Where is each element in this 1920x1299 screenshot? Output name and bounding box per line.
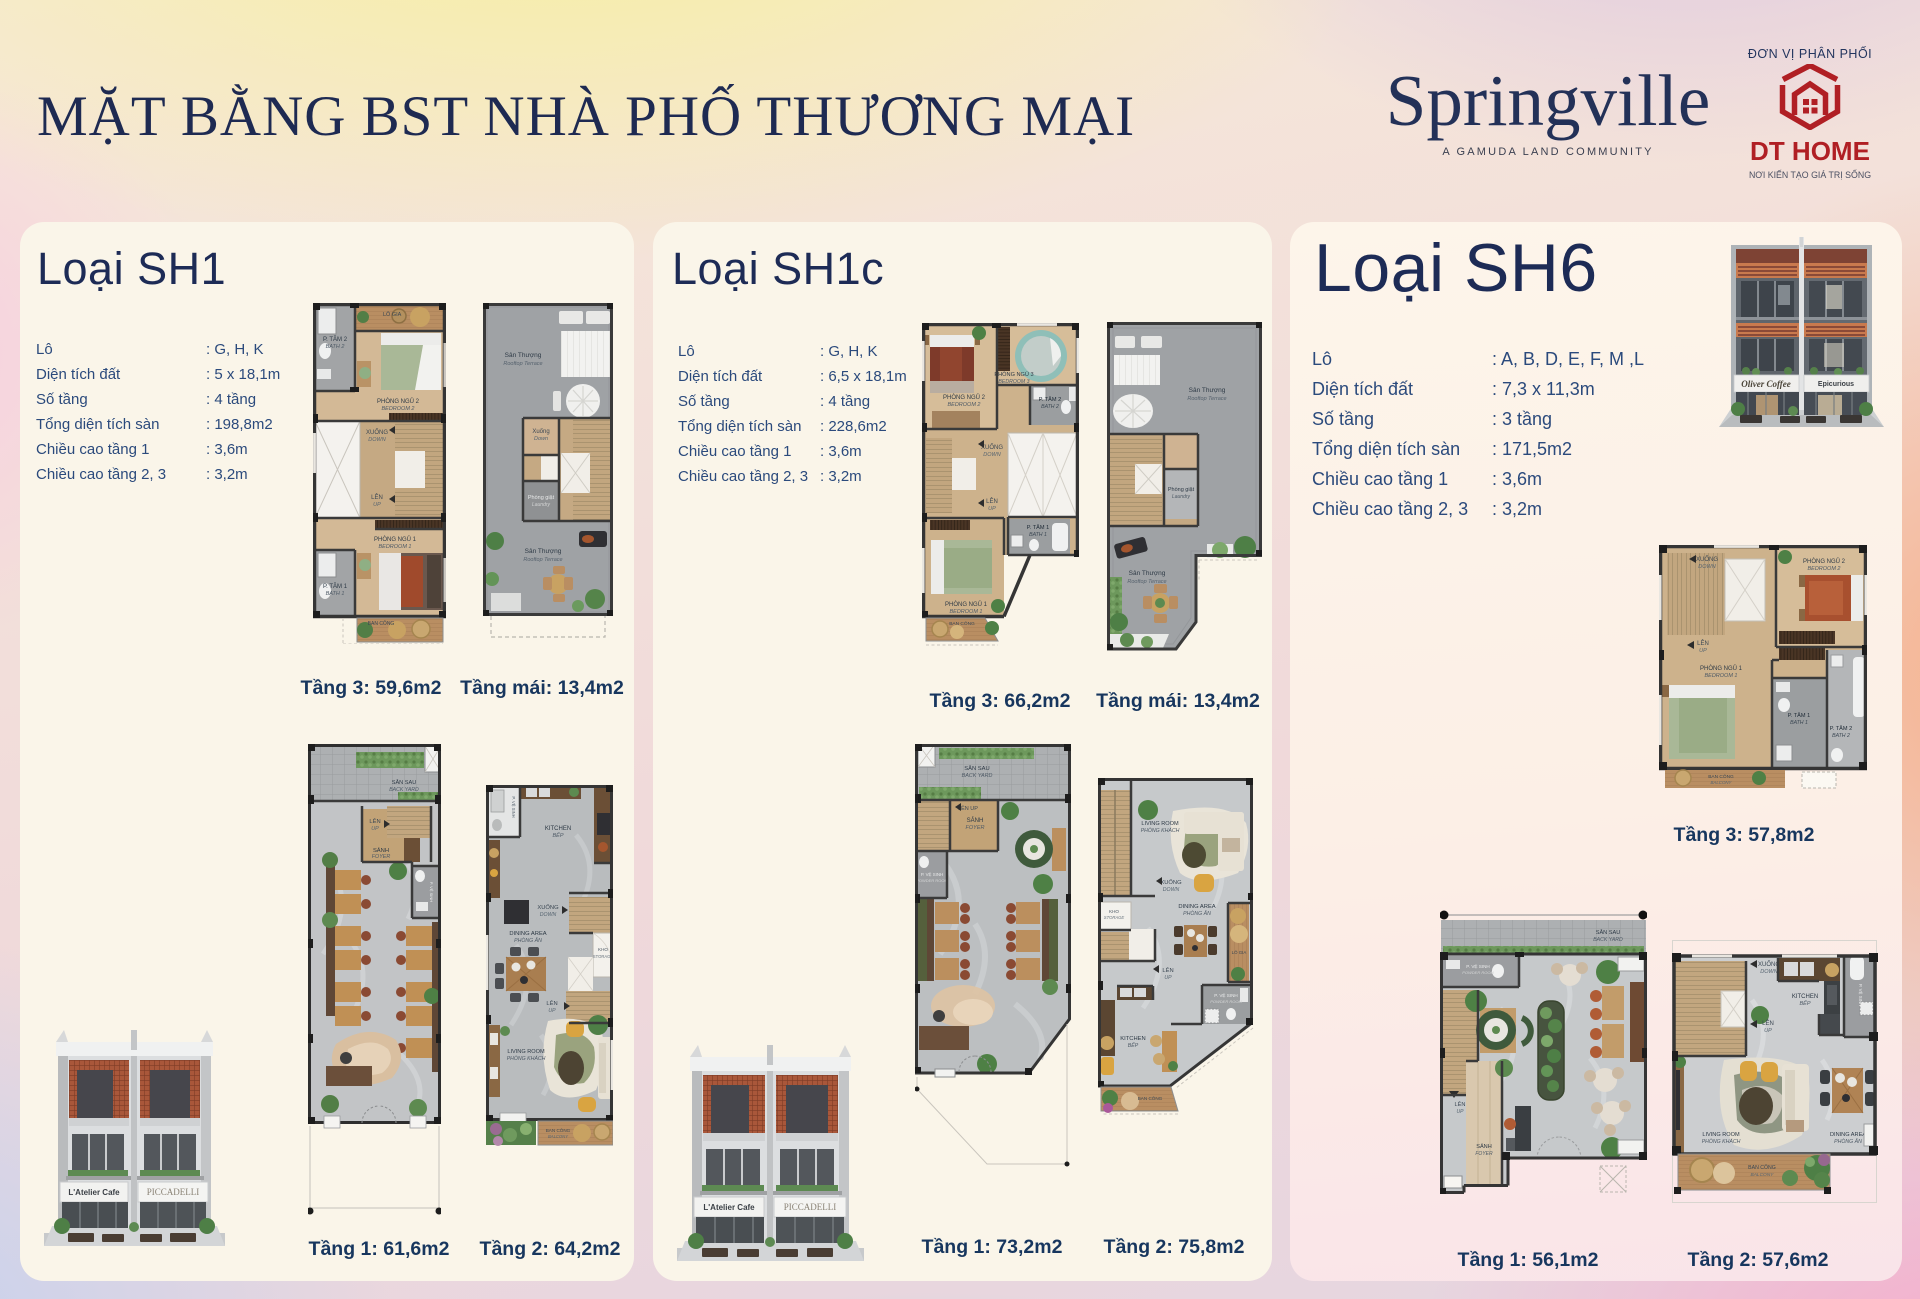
svg-text:P. TÂM 2: P. TÂM 2 — [1830, 725, 1853, 732]
svg-text:XUỐNG: XUỐNG — [1160, 879, 1182, 886]
svg-text:DOWN: DOWN — [540, 912, 557, 918]
svg-text:LÊN UP: LÊN UP — [958, 804, 978, 812]
svg-text:PHÒNG ĂN: PHÒNG ĂN — [514, 937, 542, 944]
svg-text:PHÒNG KHÁCH: PHÒNG KHÁCH — [1702, 1138, 1741, 1145]
svg-text:KHO: KHO — [598, 947, 608, 952]
svg-text:LÊN: LÊN — [1697, 639, 1709, 647]
svg-text:UP: UP — [371, 826, 379, 832]
svg-text:PHÒNG NGỦ 1: PHÒNG NGỦ 1 — [945, 601, 988, 608]
svg-text:BEDROOM 2: BEDROOM 2 — [1807, 566, 1840, 572]
svg-text:PHÒNG KHÁCH: PHÒNG KHÁCH — [1141, 827, 1180, 834]
svg-text:BEDROOM 2: BEDROOM 2 — [947, 402, 980, 408]
svg-text:Epicurious: Epicurious — [1818, 381, 1854, 388]
svg-text:Sân Thượng: Sân Thượng — [1129, 570, 1166, 577]
svg-text:DOWN: DOWN — [1698, 564, 1715, 570]
svg-text:BAN CÔNG: BAN CÔNG — [546, 1127, 571, 1133]
svg-text:SÂN SAU: SÂN SAU — [964, 765, 989, 772]
svg-text:FOYER: FOYER — [966, 825, 985, 831]
svg-text:L'Atelier Cafe: L'Atelier Cafe — [703, 1203, 755, 1212]
svg-text:Laundry: Laundry — [532, 502, 551, 508]
svg-text:SẢNH: SẢNH — [967, 817, 984, 824]
svg-text:POWDER ROOM: POWDER ROOM — [1462, 970, 1494, 975]
svg-text:LÊN: LÊN — [1762, 1019, 1774, 1027]
svg-text:UP: UP — [1699, 648, 1707, 654]
svg-text:PHÒNG ĂN: PHÒNG ĂN — [1183, 910, 1211, 917]
svg-text:PHÒNG NGỦ 1: PHÒNG NGỦ 1 — [1700, 665, 1743, 672]
svg-text:P. TÂM 1: P. TÂM 1 — [1788, 712, 1811, 719]
svg-text:PICCADELLI: PICCADELLI — [784, 1202, 837, 1212]
svg-text:LÔ GIA: LÔ GIA — [1232, 950, 1247, 955]
svg-text:Sân Thượng: Sân Thượng — [505, 352, 542, 359]
svg-text:Oliver Coffee: Oliver Coffee — [1741, 379, 1791, 389]
svg-text:BALCONY: BALCONY — [548, 1134, 569, 1139]
svg-text:DINING AREA: DINING AREA — [1178, 904, 1215, 910]
svg-text:FOYER: FOYER — [1475, 1151, 1493, 1157]
svg-text:STORAGE: STORAGE — [1104, 915, 1125, 920]
svg-text:LÊN: LÊN — [1162, 966, 1173, 974]
svg-text:P. TÂM 1: P. TÂM 1 — [323, 583, 348, 590]
svg-text:DOWN: DOWN — [1760, 969, 1777, 975]
svg-text:SÂN SAU: SÂN SAU — [392, 779, 417, 786]
svg-text:LÊN: LÊN — [986, 497, 998, 505]
svg-text:BATH 2: BATH 2 — [1832, 733, 1850, 739]
svg-text:DINING AREA: DINING AREA — [509, 931, 546, 937]
svg-text:SÂN SAU: SÂN SAU — [1596, 929, 1621, 936]
svg-text:XUỐNG: XUỐNG — [537, 904, 559, 911]
svg-text:Rooftop Terrace: Rooftop Terrace — [1187, 396, 1226, 402]
svg-text:Down: Down — [534, 436, 548, 442]
svg-text:BẾP: BẾP — [1128, 1041, 1139, 1049]
svg-text:LÊN: LÊN — [1455, 1100, 1466, 1108]
svg-text:BEDROOM 1: BEDROOM 1 — [949, 609, 982, 615]
svg-text:KITCHEN: KITCHEN — [1120, 1036, 1145, 1042]
svg-text:BATH 1: BATH 1 — [326, 591, 345, 597]
svg-text:P. TÂM 2: P. TÂM 2 — [1039, 396, 1062, 403]
svg-text:LÔ GIA: LÔ GIA — [383, 311, 402, 318]
svg-text:P. VỆ SINH: P. VỆ SINH — [511, 796, 516, 817]
svg-text:BATH 1: BATH 1 — [1790, 720, 1808, 726]
svg-text:Rooftop Terrace: Rooftop Terrace — [523, 557, 562, 563]
svg-text:Rooftop Terrace: Rooftop Terrace — [503, 361, 542, 367]
svg-text:BATH 2: BATH 2 — [1041, 404, 1059, 410]
svg-text:LIVING ROOM: LIVING ROOM — [1141, 821, 1179, 827]
svg-text:LÊN: LÊN — [546, 999, 557, 1007]
svg-text:PHÒNG ĂN: PHÒNG ĂN — [1834, 1138, 1862, 1145]
svg-text:BEDROOM 1: BEDROOM 1 — [1704, 673, 1737, 679]
svg-text:SẢNH: SẢNH — [373, 847, 389, 854]
svg-text:BACK YARD: BACK YARD — [962, 773, 993, 779]
svg-text:P. TÂM 1: P. TÂM 1 — [1027, 524, 1050, 531]
svg-text:Sân Thượng: Sân Thượng — [1189, 387, 1226, 394]
svg-text:Xuống: Xuống — [532, 429, 549, 435]
svg-text:BAN CÔNG: BAN CÔNG — [1708, 773, 1734, 780]
svg-text:PHÒNG NGỦ 3: PHÒNG NGỦ 3 — [994, 371, 1033, 378]
svg-text:PHÒNG NGỦ 2: PHÒNG NGỦ 2 — [1803, 558, 1846, 565]
svg-text:PICCADELLI: PICCADELLI — [147, 1187, 200, 1197]
svg-text:UP: UP — [1164, 975, 1172, 981]
svg-text:LIVING ROOM: LIVING ROOM — [507, 1049, 545, 1055]
svg-text:FOYER: FOYER — [372, 854, 391, 860]
svg-text:BACK YARD: BACK YARD — [1593, 937, 1623, 943]
svg-text:XUỐNG: XUỐNG — [1696, 556, 1718, 563]
svg-text:DOWN: DOWN — [368, 437, 385, 443]
svg-text:BATH 2: BATH 2 — [326, 344, 345, 350]
svg-text:LÊN: LÊN — [371, 493, 383, 501]
svg-text:Laundry: Laundry — [1172, 494, 1191, 500]
svg-text:BAN CÔNG: BAN CÔNG — [949, 620, 975, 627]
svg-text:P. VỆ SINH: P. VỆ SINH — [1466, 962, 1489, 969]
svg-text:BAN CÔNG: BAN CÔNG — [1748, 1164, 1776, 1171]
svg-text:PHÒNG NGỦ 1: PHÒNG NGỦ 1 — [374, 536, 417, 543]
svg-text:BẾP: BẾP — [1799, 999, 1810, 1007]
svg-text:P. VỆ SINH: P. VỆ SINH — [1858, 984, 1863, 1006]
svg-text:POWDER ROOM: POWDER ROOM — [916, 878, 948, 883]
svg-text:STORAGE: STORAGE — [593, 954, 613, 959]
svg-text:UP: UP — [548, 1008, 556, 1014]
svg-text:KITCHEN: KITCHEN — [1792, 994, 1818, 1000]
svg-text:PHÒNG NGỦ 2: PHÒNG NGỦ 2 — [377, 398, 420, 405]
svg-text:PHÒNG KHÁCH: PHÒNG KHÁCH — [507, 1055, 546, 1062]
svg-text:Sân Thượng: Sân Thượng — [525, 548, 562, 555]
svg-text:KITCHEN: KITCHEN — [545, 826, 571, 832]
svg-text:P. VỆ SINH: P. VỆ SINH — [921, 872, 943, 877]
svg-text:PHÒNG NGỦ 2: PHÒNG NGỦ 2 — [943, 394, 986, 401]
svg-text:LÊN: LÊN — [369, 817, 380, 825]
svg-text:P. TÂM 2: P. TÂM 2 — [323, 336, 348, 343]
svg-text:BEDROOM 2: BEDROOM 2 — [381, 406, 414, 412]
svg-text:DINING AREA: DINING AREA — [1830, 1132, 1866, 1138]
svg-text:POWDER ROOM: POWDER ROOM — [1210, 999, 1242, 1004]
svg-text:P. VỆ SINH: P. VỆ SINH — [429, 882, 434, 902]
svg-text:XUỐNG: XUỐNG — [366, 429, 388, 436]
svg-text:P. VỆ SINH: P. VỆ SINH — [1214, 991, 1237, 998]
svg-text:UP: UP — [1764, 1028, 1772, 1034]
svg-text:SẢNH: SẢNH — [1476, 1143, 1492, 1150]
svg-text:BALCONY: BALCONY — [1751, 1172, 1775, 1178]
svg-text:BATH 1: BATH 1 — [1029, 532, 1047, 538]
svg-text:Phòng giặt: Phòng giặt — [1168, 487, 1195, 493]
svg-text:BẾP: BẾP — [552, 831, 563, 839]
svg-text:DOWN: DOWN — [1163, 887, 1180, 893]
svg-text:BALCONY: BALCONY — [1711, 780, 1733, 785]
svg-text:Phòng giặt: Phòng giặt — [528, 495, 555, 501]
svg-text:XUỐNG: XUỐNG — [981, 444, 1003, 451]
svg-text:BEDROOM 1: BEDROOM 1 — [378, 544, 411, 550]
svg-text:BAN CÔNG: BAN CÔNG — [1138, 1095, 1163, 1101]
svg-text:UP: UP — [373, 502, 381, 508]
svg-text:KHO: KHO — [1109, 909, 1119, 914]
svg-text:LIVING ROOM: LIVING ROOM — [1702, 1132, 1740, 1138]
svg-text:L'Atelier Cafe: L'Atelier Cafe — [68, 1188, 120, 1197]
svg-text:UP: UP — [988, 506, 996, 512]
svg-text:DOWN: DOWN — [983, 452, 1000, 458]
svg-text:UP: UP — [1457, 1109, 1465, 1115]
svg-text:BAN CÔNG: BAN CÔNG — [368, 620, 395, 627]
